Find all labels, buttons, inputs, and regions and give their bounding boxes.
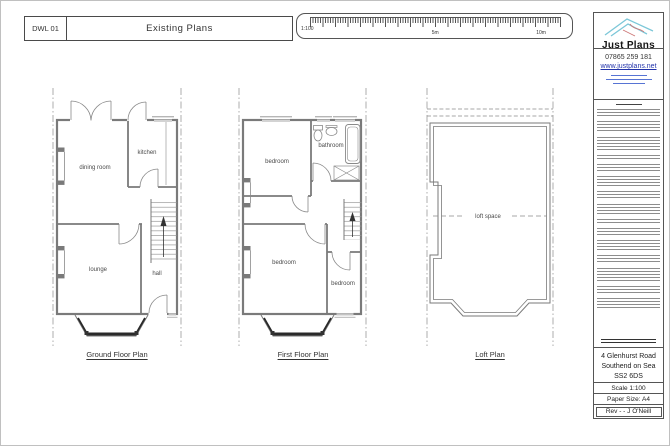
- room-label-bedroom-small: bedroom: [331, 281, 355, 287]
- notes-footer-line: [601, 339, 656, 340]
- ruler-10m-label: 10m: [536, 30, 546, 36]
- room-label-kitchen: kitchen: [137, 150, 156, 156]
- contact-panel: 07865 259 181 www.justplans.net: [593, 48, 664, 100]
- loft-plan-title: Loft Plan: [430, 350, 550, 359]
- logo-panel: Just Plans: [593, 12, 664, 49]
- ruler-5m-label: 5m: [432, 30, 439, 36]
- room-label-loft-space: loft space: [475, 214, 501, 220]
- room-label-lounge: lounge: [89, 267, 108, 273]
- small-link-line: [613, 83, 645, 84]
- title-block: DWL 01 Existing Plans: [24, 16, 293, 41]
- first-floor-plan-drawing: bedroom bathroom bedroom bedroom: [230, 85, 380, 355]
- notes-heading-line: [616, 104, 642, 105]
- scale-text: Scale 1:100: [611, 385, 645, 392]
- website-link: www.justplans.net: [594, 63, 663, 70]
- title-block-sidebar: Just Plans 07865 259 181 www.justplans.n…: [593, 13, 664, 419]
- paper-size-text: Paper Size: A4: [607, 396, 650, 403]
- room-label-bathroom: bathroom: [318, 143, 343, 149]
- general-notes-panel: [593, 99, 664, 348]
- room-label-bedroom-front: bedroom: [272, 260, 296, 266]
- ground-floor-plan-drawing: dining room kitchen lounge hall: [40, 85, 190, 355]
- ground-floor-plan-title: Ground Floor Plan: [57, 350, 177, 359]
- revision-text: Rev - - J O'Neill: [596, 407, 662, 417]
- project-address-panel: 4 Glenhurst Road Southend on Sea SS2 6DS: [593, 347, 664, 383]
- small-link-line: [606, 79, 652, 80]
- scale-ruler: 1:100 5m 10m: [296, 13, 573, 39]
- room-label-bedroom-rear: bedroom: [265, 159, 289, 165]
- notes-footer-line: [601, 342, 656, 343]
- revision-panel: Rev - - J O'Neill: [593, 404, 664, 419]
- room-label-hall: hall: [152, 271, 161, 277]
- loft-plan-drawing: loft space: [420, 85, 565, 355]
- just-plans-roof-sketch-icon: [597, 15, 661, 37]
- ruler-scale-label: 1:100: [301, 26, 314, 32]
- first-floor-plan-title: First Floor Plan: [243, 350, 363, 359]
- room-label-dining: dining room: [79, 165, 110, 171]
- address-line-2: Southend on Sea: [594, 362, 663, 372]
- phone-number: 07865 259 181: [594, 54, 663, 61]
- drawing-number: DWL 01: [24, 16, 67, 41]
- small-link-line: [611, 75, 647, 76]
- address-line-3: SS2 6DS: [594, 372, 663, 382]
- drawing-title: Existing Plans: [66, 16, 293, 41]
- ruler-ticks: [310, 17, 561, 28]
- drawing-sheet: DWL 01 Existing Plans 1:100 5m 10m: [0, 0, 670, 446]
- address-line-1: 4 Glenhurst Road: [594, 352, 663, 362]
